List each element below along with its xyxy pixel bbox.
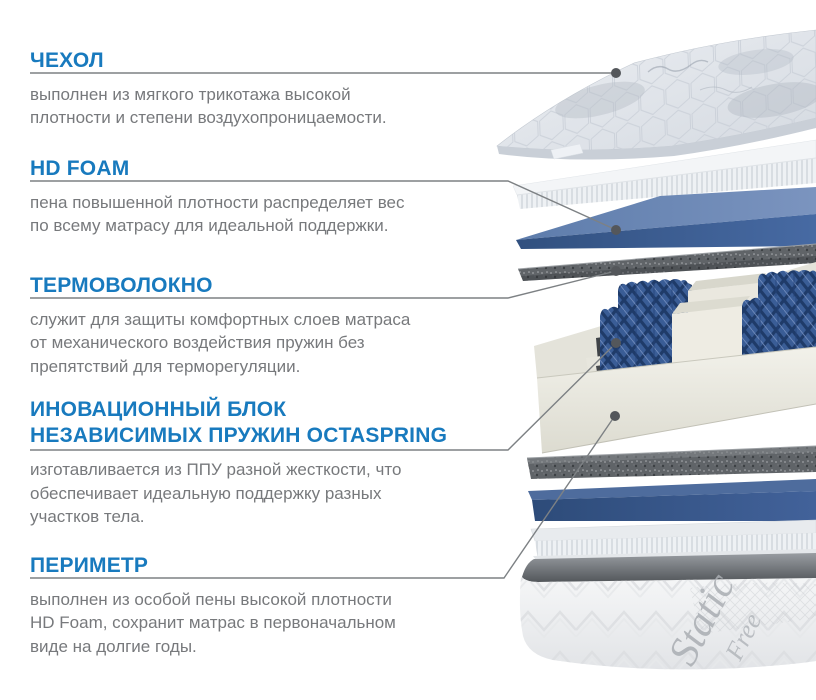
section-description-perimeter: выполнен из особой пены высокой плотност… [30,588,530,658]
leader-dot-cover [611,68,621,78]
section-heading-hd-foam: HD FOAM [30,156,530,182]
leader-dot-thermal-fiber [611,266,621,276]
section-perimeter: ПЕРИМЕТР выполнен из особой пены высокой… [30,553,530,658]
leader-dot-perimeter [610,411,620,421]
section-cover: ЧЕХОЛ выполнен из мягкого трикотажа высо… [30,48,530,130]
section-heading-cover: ЧЕХОЛ [30,48,530,74]
thermal-fiber-lower-layer [527,446,816,479]
section-thermal-fiber: ТЕРМОВОЛОКНО служит для защиты комфортны… [30,273,530,378]
section-heading-perimeter: ПЕРИМЕТР [30,553,530,579]
section-heading-thermal-fiber: ТЕРМОВОЛОКНО [30,273,530,299]
cover-layer [497,30,816,160]
section-description-hd-foam: пена повышенной плотности распределяет в… [30,191,530,238]
section-spring-block: ИНОВАЦИОННЫЙ БЛОК НЕЗАВИСИМЫХ ПРУЖИН OCT… [30,397,530,528]
mattress-base-layer: Static Free [520,549,816,673]
section-hd-foam: HD FOAM пена повышенной плотности распре… [30,156,530,238]
section-heading-spring-block: ИНОВАЦИОННЫЙ БЛОК НЕЗАВИСИМЫХ ПРУЖИН OCT… [30,397,530,449]
hd-foam-lower-layer [528,479,816,521]
leader-dot-hd-foam [611,225,621,235]
section-description-cover: выполнен из мягкого трикотажа высокой пл… [30,83,530,130]
mattress-infographic: Static Free ЧЕХОЛ выполнен из мягкого тр… [0,0,816,700]
leader-dot-spring-block [611,338,621,348]
section-description-thermal-fiber: служит для защиты комфортных слоев матра… [30,308,530,378]
octaspring-block-layer [534,262,816,453]
section-description-spring-block: изготавливается из ППУ разной жесткости,… [30,458,530,528]
